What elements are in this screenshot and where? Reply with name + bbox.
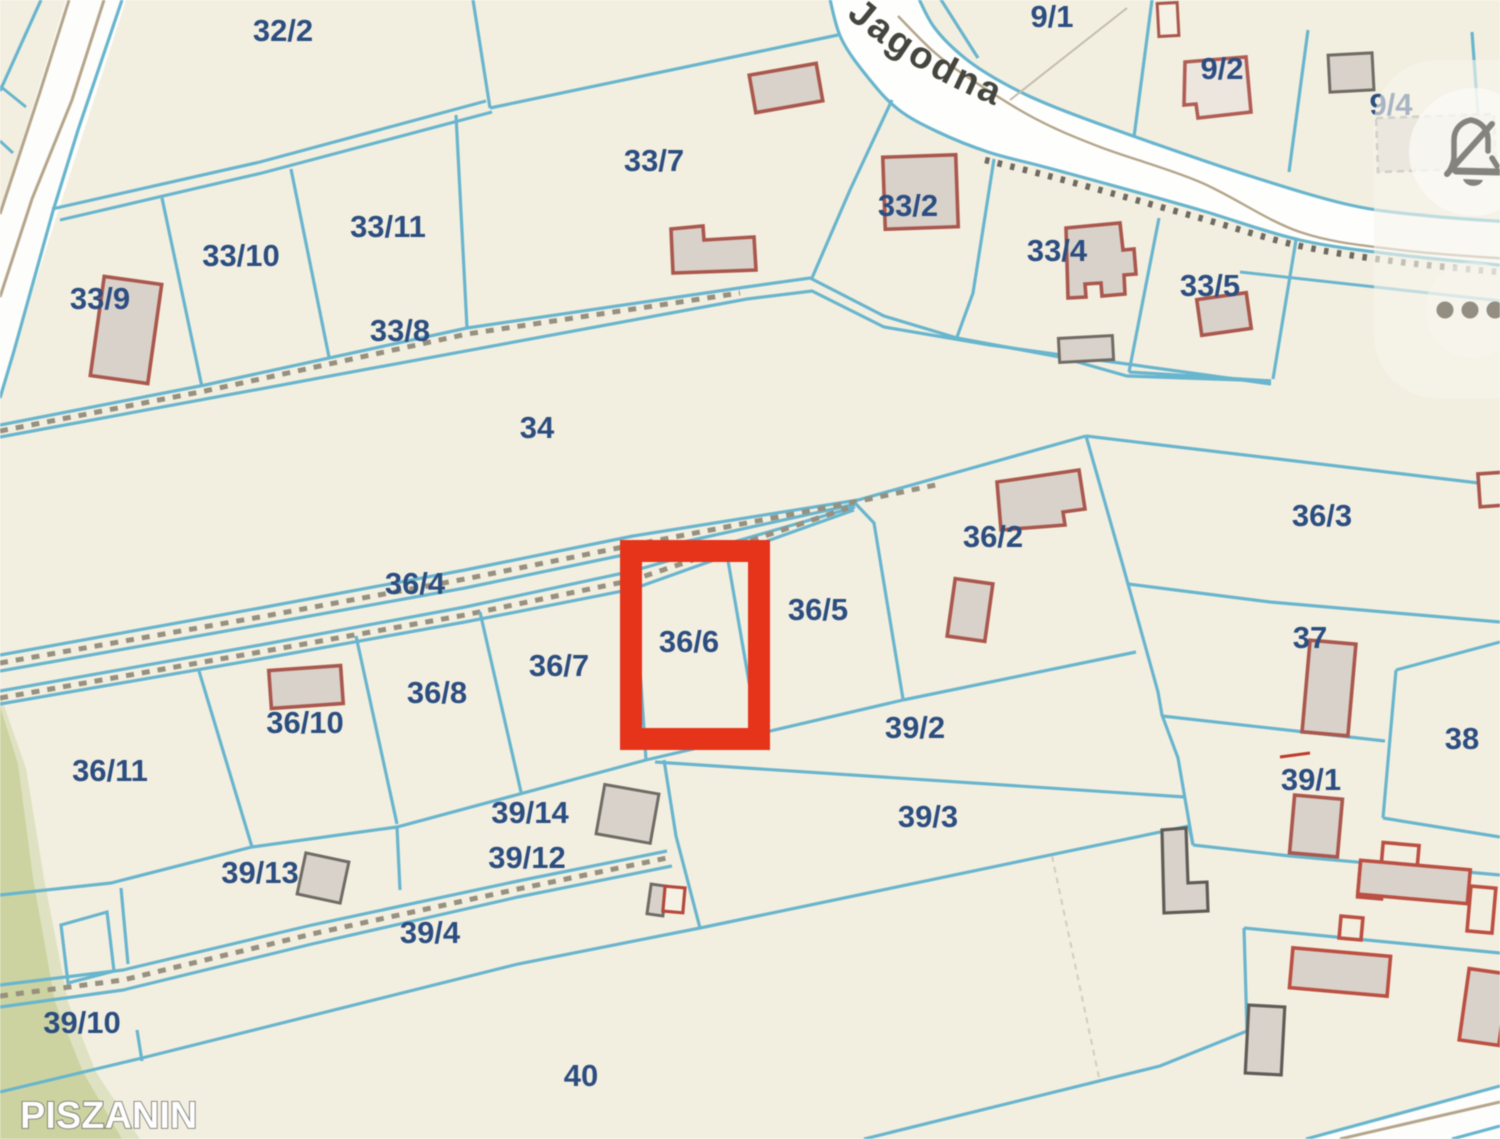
svg-text:36/2: 36/2: [963, 519, 1023, 554]
svg-text:34: 34: [520, 410, 555, 445]
svg-text:36/3: 36/3: [1292, 498, 1352, 533]
svg-text:9/2: 9/2: [1200, 51, 1243, 86]
svg-text:39/3: 39/3: [898, 799, 958, 834]
svg-text:33/11: 33/11: [350, 209, 426, 244]
svg-text:37: 37: [1293, 620, 1327, 655]
svg-text:36/4: 36/4: [385, 566, 446, 601]
svg-text:36/7: 36/7: [529, 648, 589, 683]
svg-text:38: 38: [1445, 721, 1479, 756]
svg-text:33/2: 33/2: [878, 188, 938, 223]
svg-text:39/13: 39/13: [221, 855, 299, 890]
svg-text:33/4: 33/4: [1027, 233, 1088, 268]
svg-text:36/8: 36/8: [407, 675, 467, 710]
svg-text:36/10: 36/10: [266, 705, 344, 740]
svg-text:39/10: 39/10: [43, 1005, 121, 1040]
svg-text:32/2: 32/2: [253, 13, 313, 48]
svg-text:39/14: 39/14: [491, 795, 569, 830]
svg-text:PISZANIN: PISZANIN: [20, 1095, 197, 1137]
svg-text:36/5: 36/5: [788, 592, 848, 627]
svg-text:39/2: 39/2: [885, 710, 945, 745]
svg-text:9/1: 9/1: [1030, 0, 1073, 34]
svg-text:39/12: 39/12: [488, 840, 566, 875]
svg-text:33/5: 33/5: [1180, 268, 1240, 303]
svg-text:39/4: 39/4: [400, 915, 461, 950]
svg-text:36/11: 36/11: [72, 753, 148, 788]
svg-text:40: 40: [564, 1058, 598, 1093]
svg-text:39/1: 39/1: [1281, 762, 1341, 797]
svg-text:33/10: 33/10: [202, 238, 280, 273]
svg-text:36/6: 36/6: [659, 624, 719, 659]
svg-text:33/9: 33/9: [70, 281, 130, 316]
svg-text:33/8: 33/8: [370, 313, 430, 348]
svg-text:33/7: 33/7: [624, 143, 684, 178]
